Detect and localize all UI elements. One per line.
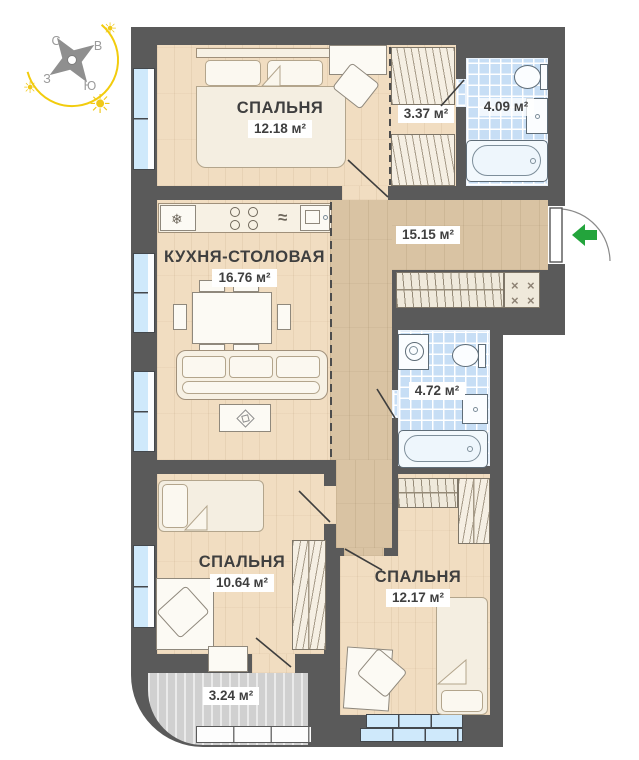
snowflake-icon: ❄ [171, 212, 183, 226]
pillow [162, 484, 188, 528]
room-area: 4.72 м² [409, 382, 466, 400]
room-label-bedroom-right: СПАЛЬНЯ 12.17 м² [340, 568, 496, 607]
wardrobe-hallway-shelves: × × × × [504, 272, 540, 308]
pillow [267, 60, 323, 86]
compass-icon: ☀ ☀ ☀ С В З Ю [12, 12, 132, 132]
stove [226, 204, 274, 232]
compass-west-label: З [43, 72, 51, 86]
balcony-bench [208, 646, 248, 672]
stove-burner [230, 207, 240, 217]
room-area: 12.18 м² [248, 120, 312, 138]
room-label-bedroom-left: СПАЛЬНЯ 10.64 м² [160, 553, 324, 592]
toilet-tank [478, 344, 486, 368]
window-kitchen-2 [133, 371, 155, 452]
window-bedroom-left [133, 545, 155, 628]
pillow [441, 690, 483, 712]
floor-corridor-lower [336, 460, 392, 548]
dining-chair [173, 304, 187, 330]
coffee-table [219, 404, 271, 432]
wardrobe-closet-bottom [391, 134, 455, 186]
doorway-entrance [548, 206, 565, 264]
window-balcony [196, 726, 312, 743]
bathtub [398, 430, 488, 468]
room-area: 12.17 м² [386, 589, 450, 607]
room-name: СПАЛЬНЯ [340, 568, 496, 587]
door-swing-arc [562, 209, 610, 261]
pillow [205, 60, 261, 86]
room-area: 10.64 м² [210, 574, 274, 592]
room-label-kitchen: КУХНЯ-СТОЛОВАЯ 16.76 м² [157, 248, 332, 287]
sofa-seat [182, 381, 320, 394]
room-label-bedroom-top: СПАЛЬНЯ 12.18 м² [180, 99, 380, 138]
dining-chair [277, 304, 291, 330]
sofa-cushion [276, 356, 320, 378]
fridge: ❄ [160, 205, 196, 231]
stove-burner [248, 207, 258, 217]
doorway-bedroom-top [342, 186, 388, 200]
faucet [323, 215, 328, 220]
sink-basin [305, 210, 320, 224]
toilet [514, 65, 541, 89]
vent-waves-icon: ≈ [278, 209, 287, 226]
toilet-tank [540, 64, 548, 90]
sun-icon: ☀ [88, 89, 111, 119]
window-kitchen-1 [133, 253, 155, 333]
washing-machine [398, 334, 429, 370]
toilet [452, 344, 479, 367]
green-arrow-icon [572, 224, 597, 246]
room-label-balcony: 3.24 м² [191, 685, 271, 705]
room-area: 3.24 м² [203, 687, 260, 705]
compass-east-label: В [94, 39, 102, 53]
stove-burner [248, 220, 258, 230]
sun-icon: ☀ [103, 21, 117, 38]
floor-plan: ☀ ☀ ☀ С В З Ю × × × × [0, 0, 639, 760]
x-mark-icon: × [527, 279, 535, 292]
bed-headboard [196, 48, 346, 58]
doorway-bedroom-right [344, 548, 384, 556]
x-mark-icon: × [527, 294, 535, 307]
room-label-bathroom-mid: 4.72 м² [397, 380, 477, 400]
room-name: СПАЛЬНЯ [180, 99, 380, 118]
sofa [176, 350, 328, 400]
room-area: 16.76 м² [212, 269, 276, 287]
doorway-bedroom-left [324, 486, 336, 524]
x-mark-icon: × [511, 294, 519, 307]
window-bedroom-right-inner [360, 728, 463, 742]
sofa-cushion [182, 356, 226, 378]
bathtub [466, 140, 548, 182]
wardrobe-bedroom-right-side [458, 478, 490, 544]
wardrobe-hallway [396, 272, 504, 308]
sofa-cushion [229, 356, 273, 378]
bathtub-drain [467, 446, 473, 452]
window-bedroom-right-outer [366, 714, 463, 728]
bathtub-drain [530, 158, 536, 164]
sink-drain [473, 407, 478, 412]
kitchen-sink [300, 205, 330, 231]
room-label-closet: 3.37 м² [386, 103, 466, 123]
wardrobe-bedroom-right-top [398, 478, 458, 508]
sun-icon: ☀ [23, 80, 37, 97]
plant-icon [236, 409, 254, 427]
compass-south-label: Ю [84, 79, 97, 93]
room-name: КУХНЯ-СТОЛОВАЯ [157, 248, 332, 267]
dining-table [192, 292, 272, 344]
room-area: 15.15 м² [396, 226, 460, 244]
x-mark-icon: × [511, 279, 519, 292]
compass-center [68, 56, 77, 65]
room-name: СПАЛЬНЯ [160, 553, 324, 572]
room-label-bathroom-top: 4.09 м² [465, 96, 547, 116]
room-area: 3.37 м² [398, 105, 455, 123]
room-label-hallway: 15.15 м² [368, 224, 488, 244]
window-bedroom-top [133, 68, 155, 170]
doorway-balcony [252, 654, 295, 673]
stove-burner [230, 220, 240, 230]
wardrobe-closet-top [391, 47, 455, 105]
room-area: 4.09 м² [478, 98, 535, 116]
compass-north-label: С [51, 34, 60, 48]
washer-drum-icon [405, 342, 424, 361]
